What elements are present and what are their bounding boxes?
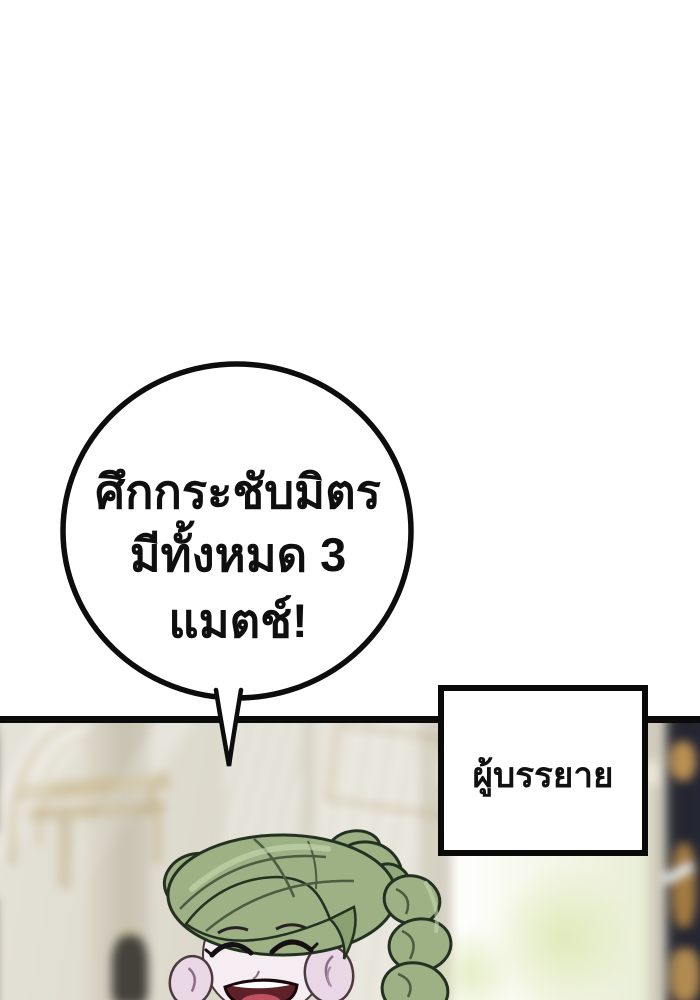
statue-silhouette: [112, 935, 148, 1000]
gold-carving: [672, 843, 696, 928]
braid: [378, 870, 455, 1000]
narrator-box: ผู้บรรยาย: [438, 685, 648, 856]
speech-line-2: มีทั้งหมด 3 แมตช์!: [62, 522, 414, 654]
speech-line-1: ศึกกระชับมิตร: [62, 462, 414, 522]
narrator-label: ผู้บรรยาย: [473, 738, 614, 803]
hair: [158, 828, 416, 959]
speech-bubble-text: ศึกกระชับมิตร มีทั้งหมด 3 แมตช์!: [62, 462, 414, 654]
character-illustration: [158, 819, 470, 1000]
speech-bubble-tail: [216, 690, 241, 766]
webtoon-page: ศึกกระชับมิตร มีทั้งหมด 3 แมตช์! ผู้บรรย…: [0, 0, 700, 1000]
gold-carving: [670, 948, 700, 1000]
gold-carving: [670, 741, 696, 781]
